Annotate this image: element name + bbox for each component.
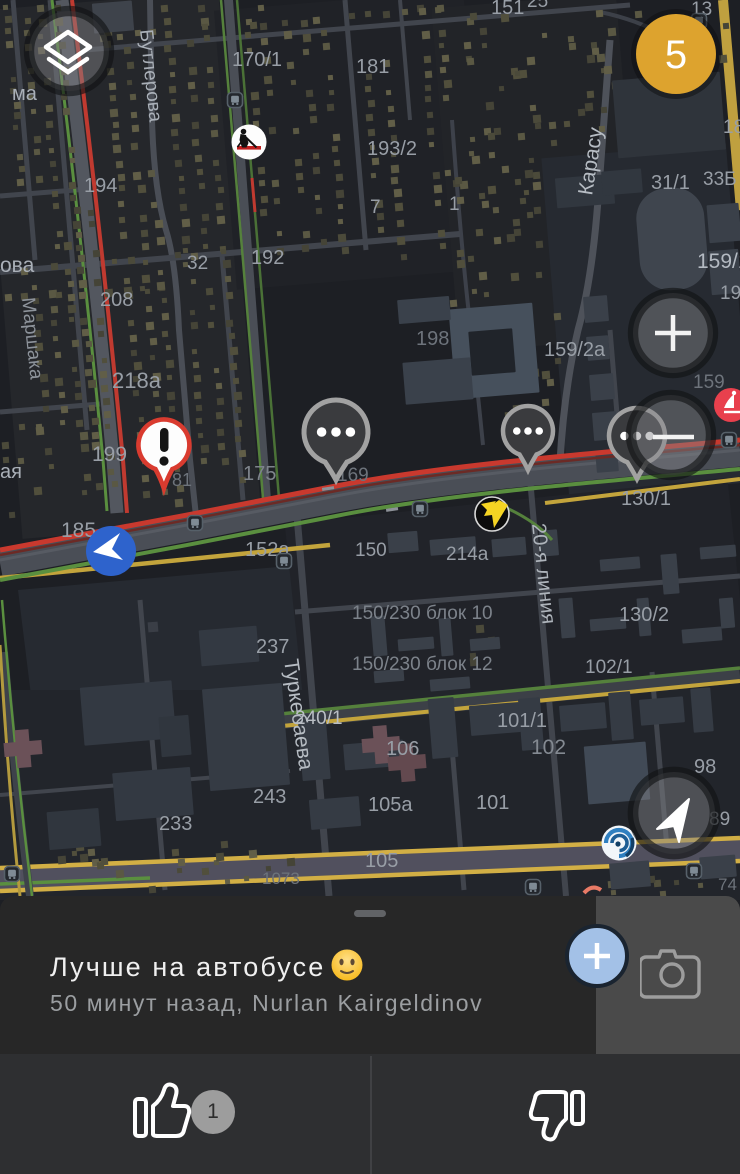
svg-text:25: 25 (527, 0, 548, 12)
svg-text:151: 151 (491, 0, 524, 19)
svg-text:199: 199 (92, 443, 127, 466)
svg-text:159/2а: 159/2а (544, 339, 606, 361)
svg-text:7: 7 (370, 197, 381, 218)
svg-text:233: 233 (159, 813, 192, 835)
svg-text:102: 102 (531, 736, 566, 759)
svg-text:175: 175 (243, 463, 276, 485)
svg-text:102/1: 102/1 (585, 657, 633, 678)
svg-text:193/2: 193/2 (367, 138, 417, 160)
svg-text:130/1: 130/1 (621, 488, 671, 510)
svg-text:198: 198 (416, 328, 449, 350)
svg-text:243: 243 (253, 786, 286, 808)
svg-text:81: 81 (172, 470, 192, 490)
svg-text:ма: ма (12, 83, 38, 105)
svg-text:130/2: 130/2 (619, 604, 669, 626)
svg-text:237: 237 (256, 636, 289, 658)
svg-text:1073: 1073 (262, 869, 300, 888)
svg-text:208: 208 (100, 289, 133, 311)
svg-text:18: 18 (723, 117, 740, 138)
svg-text:19: 19 (720, 283, 740, 304)
svg-text:181: 181 (356, 56, 389, 78)
svg-text:150: 150 (355, 540, 387, 561)
svg-text:194: 194 (84, 175, 117, 197)
svg-text:101/1: 101/1 (497, 710, 547, 732)
svg-text:101: 101 (476, 792, 509, 814)
svg-text:ая: ая (0, 461, 22, 483)
svg-text:170/1: 170/1 (232, 49, 282, 71)
svg-text:159/1: 159/1 (697, 250, 740, 273)
svg-text:ова: ова (0, 254, 35, 277)
svg-text:5: 5 (665, 33, 687, 77)
svg-text:192: 192 (251, 247, 284, 269)
svg-text:218а: 218а (112, 368, 162, 393)
svg-text:159: 159 (693, 372, 725, 393)
svg-text:106: 106 (386, 738, 419, 760)
svg-text:1: 1 (449, 194, 460, 215)
svg-text:32: 32 (187, 253, 208, 274)
svg-text:31/1: 31/1 (651, 172, 690, 194)
svg-text:150/230 блок 12: 150/230 блок 12 (352, 654, 493, 675)
svg-text:150/230 блок 10: 150/230 блок 10 (352, 603, 493, 624)
svg-text:105а: 105а (368, 794, 413, 816)
svg-text:33Б: 33Б (703, 169, 737, 190)
svg-text:214а: 214а (446, 544, 489, 565)
svg-text:74: 74 (718, 875, 737, 894)
svg-text:105: 105 (365, 850, 398, 872)
